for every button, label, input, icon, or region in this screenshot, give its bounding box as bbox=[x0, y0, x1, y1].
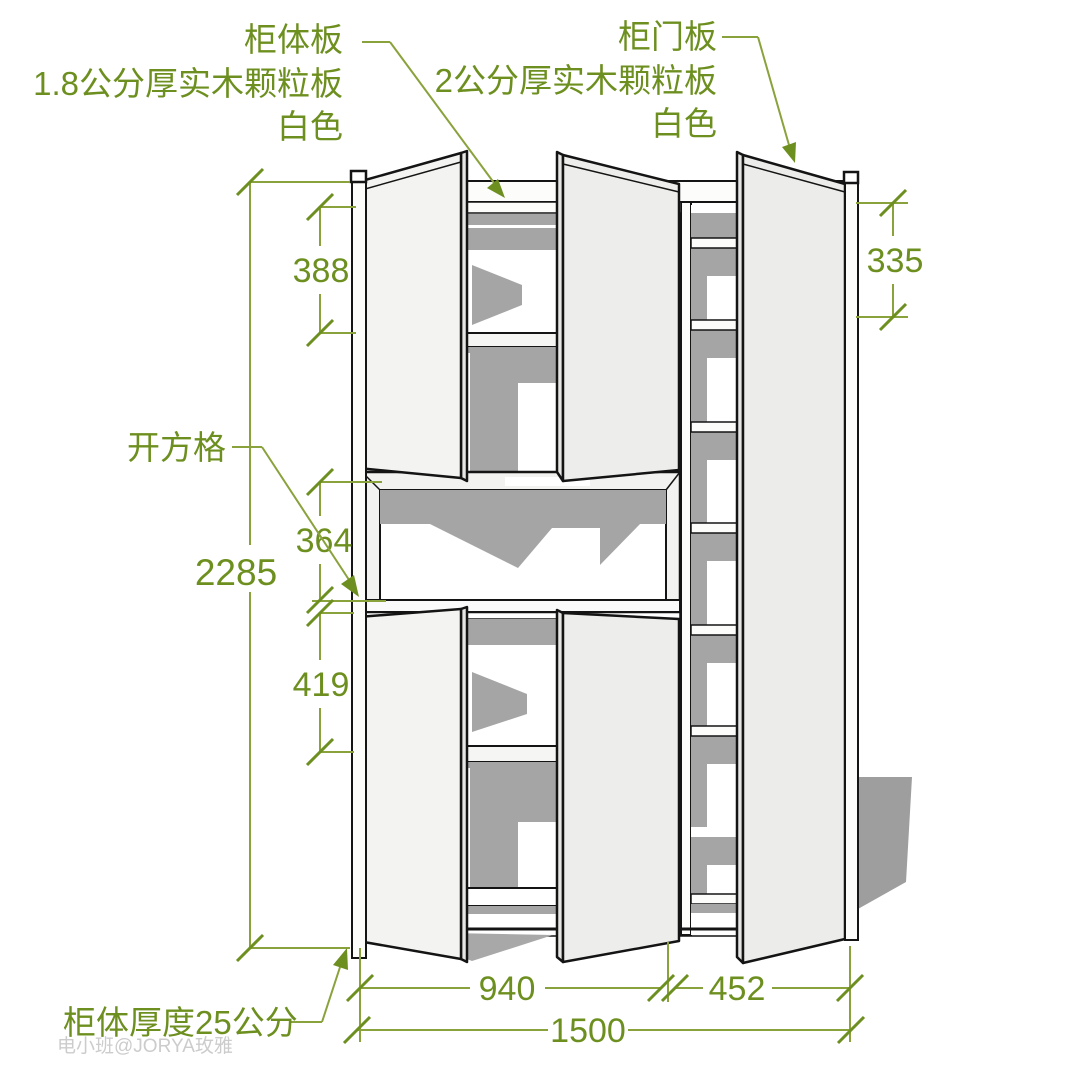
right-door bbox=[743, 155, 845, 963]
middle-partition-panel bbox=[681, 183, 691, 935]
dim-upper-left-shelf: 388 bbox=[293, 194, 356, 346]
body-thickness-arrow bbox=[333, 948, 348, 970]
body-panel-color: 白色 bbox=[277, 108, 343, 145]
dim-total-width: 1500 bbox=[344, 1012, 864, 1050]
cubby-top-slot bbox=[691, 213, 743, 238]
dim-940-value: 940 bbox=[479, 970, 536, 1008]
lower-middle-door bbox=[563, 613, 679, 962]
cabinet-drawing: 2285 388 364 bbox=[0, 0, 1080, 1080]
cabinet-diagram-page: 2285 388 364 bbox=[0, 0, 1080, 1080]
body-thickness-callout: 柜体厚度25公分 bbox=[63, 948, 348, 1041]
door-panel-spec: 2公分厚实木颗粒板 bbox=[435, 62, 717, 99]
left-side-panel bbox=[352, 180, 366, 958]
dim-388-value: 388 bbox=[293, 252, 350, 290]
right-panel-cap bbox=[844, 172, 858, 183]
dim-total-height-value: 2285 bbox=[195, 552, 277, 593]
compartment-bottom-band bbox=[362, 600, 680, 612]
upper-middle-door bbox=[563, 155, 679, 481]
left-panel-cap bbox=[351, 171, 366, 182]
dim-335-value: 335 bbox=[867, 242, 924, 280]
body-panel-spec: 1.8公分厚实木颗粒板 bbox=[33, 65, 343, 102]
dim-419-value: 419 bbox=[293, 666, 350, 704]
dim-lower-left-shelf: 419 bbox=[293, 600, 354, 765]
door-panel-callout: 柜门板 2公分厚实木颗粒板 白色 bbox=[435, 18, 796, 163]
body-panel-name: 柜体板 bbox=[244, 21, 343, 58]
door-panel-color: 白色 bbox=[651, 105, 717, 142]
upper-left-door bbox=[358, 153, 461, 478]
dim-right-top-shelf: 335 bbox=[856, 190, 923, 330]
cubby-floor-shadow bbox=[691, 904, 743, 913]
lower-left-door bbox=[358, 609, 461, 959]
right-side-panel bbox=[845, 182, 858, 940]
right-cubby-column bbox=[691, 205, 743, 935]
dim-452-value: 452 bbox=[709, 970, 766, 1008]
watermark: 电小班@JORYA玫雅 bbox=[57, 1035, 233, 1057]
open-compartment bbox=[362, 472, 680, 612]
open-cubby-label: 开方格 bbox=[127, 429, 226, 466]
door-panel-arrow bbox=[782, 142, 796, 163]
dim-1500-value: 1500 bbox=[550, 1012, 626, 1050]
door-panel-name: 柜门板 bbox=[618, 18, 717, 55]
